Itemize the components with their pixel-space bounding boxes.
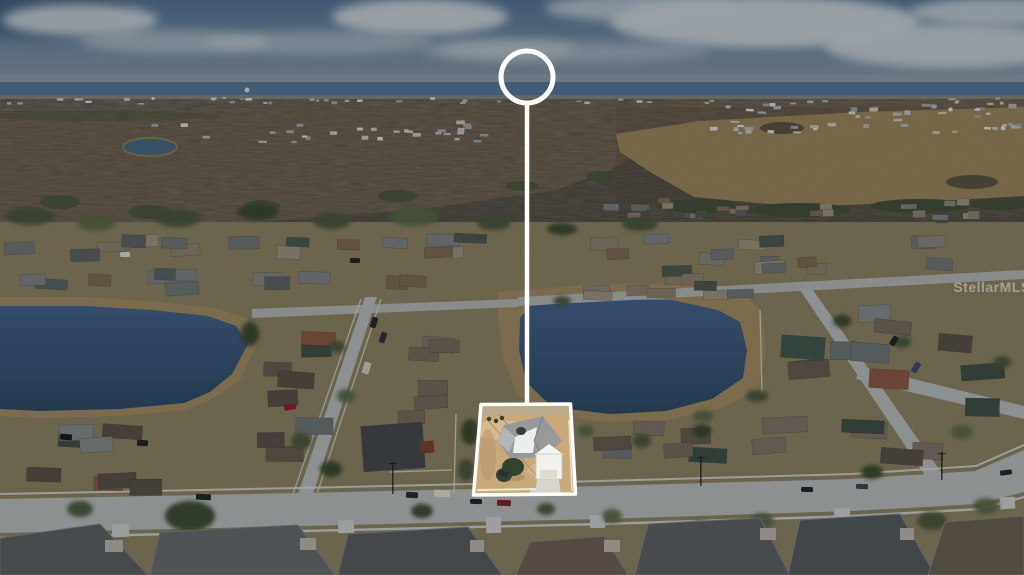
watermark: StellarMLS [953,279,1024,295]
aerial-photo-svg: StellarMLS [0,0,1024,575]
dim-overlay [0,0,1024,575]
aerial-photo: StellarMLS [0,0,1024,575]
